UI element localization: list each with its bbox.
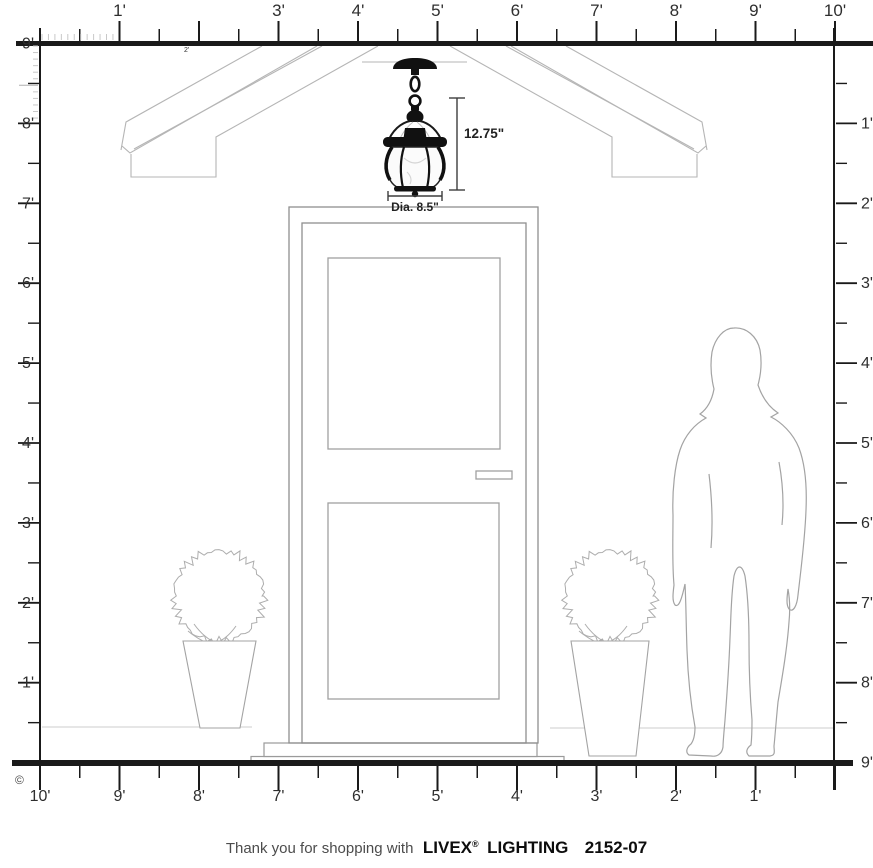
- lantern-canopy: [393, 58, 437, 69]
- ruler-label: 6': [861, 515, 873, 532]
- bush-twigs: [188, 624, 627, 641]
- ruler-label: 1': [861, 115, 873, 132]
- ruler-label: 9': [22, 36, 34, 53]
- lantern-chain: [410, 77, 421, 107]
- lantern-stem: [411, 69, 419, 75]
- ruler-label: 6': [22, 275, 34, 292]
- height-dimension-label: 12.75": [464, 126, 504, 141]
- footer-brand-suffix: LIGHTING: [487, 838, 568, 857]
- ruler-label: 2': [670, 788, 682, 805]
- ruler-label: 1': [750, 788, 762, 805]
- ruler-label: 5': [432, 788, 444, 805]
- door-leaf: [302, 223, 526, 743]
- front-door: [289, 207, 538, 743]
- ruler-label: 8': [670, 1, 683, 20]
- height-dimension-line: [449, 98, 465, 190]
- footer-model-number: 2152-07: [585, 838, 647, 857]
- ruler-label: 6': [352, 788, 364, 805]
- ruler-line-left: [39, 28, 41, 790]
- ruler-label: 3': [272, 1, 285, 20]
- lantern-collar: [383, 137, 447, 147]
- ruler-label: 5': [861, 435, 873, 452]
- ruler-label: 4': [352, 1, 365, 20]
- diameter-dimension-label: Dia. 8.5": [391, 200, 439, 214]
- door-upper-panel: [328, 258, 500, 449]
- ruler-label: 4': [861, 355, 873, 372]
- ruler-label: 10': [824, 1, 846, 20]
- ground-line: [42, 727, 833, 728]
- ruler-label: 8': [22, 115, 34, 132]
- ruler-label: 7': [590, 1, 603, 20]
- ruler-label: 2': [22, 595, 34, 612]
- ruler-label: 3': [861, 275, 873, 292]
- copyright-symbol: ©: [15, 773, 24, 787]
- planter-left: [183, 641, 256, 728]
- measurement-rulers: 1'3'4'5'6'7'8'9'10'10'9'8'7'6'5'4'3'2'1'…: [12, 1, 873, 805]
- door-lower-panel: [328, 503, 499, 699]
- ruler-line-bottom: [12, 760, 853, 766]
- top-ruler-glitch-label: 2': [184, 47, 189, 54]
- dimension-diagram-canvas: 12.75" Dia. 8.5" 1'3'4'5'6'7'8'9'10'10'9…: [0, 0, 873, 868]
- product-dimension-page: { "rulers": { "top": { "labels": ["1'","…: [0, 0, 873, 868]
- ruler-label: 3': [22, 515, 34, 532]
- ruler-label: 9': [749, 1, 762, 20]
- lantern-glass-body: [386, 147, 444, 188]
- bush-left: [171, 550, 268, 646]
- ruler-label: 2': [861, 195, 873, 212]
- woman-silhouette: [673, 328, 806, 756]
- ruler-label: 6': [511, 1, 524, 20]
- registered-trademark-symbol: ®: [472, 839, 479, 849]
- ruler-label: 4': [22, 435, 34, 452]
- ruler-label: 7': [22, 195, 34, 212]
- ruler-label: 5': [431, 1, 444, 20]
- footer: Thank you for shopping with LIVEX® LIGHT…: [0, 838, 873, 858]
- planter-right: [571, 641, 649, 756]
- ruler-label: 7': [861, 595, 873, 612]
- footer-brand-name: LIVEX: [423, 838, 472, 857]
- ruler-label: 8': [193, 788, 205, 805]
- ruler-line-right: [833, 28, 835, 790]
- ruler-label: 9': [861, 755, 873, 772]
- lantern-bottom-rim: [394, 186, 436, 192]
- ruler-labels: 1'3'4'5'6'7'8'9'10'10'9'8'7'6'5'4'3'2'1'…: [22, 1, 873, 805]
- ruler-label: 10': [30, 788, 51, 805]
- ruler-label: 5': [22, 355, 34, 372]
- door-handle: [476, 471, 512, 479]
- ruler-label: 9': [114, 788, 126, 805]
- ruler-line-top: [16, 41, 873, 46]
- ruler-label: 1': [22, 675, 34, 692]
- pendant-lantern-illustration: 12.75" Dia. 8.5": [383, 58, 504, 214]
- topiary-bushes: [171, 550, 659, 646]
- ruler-label: 7': [273, 788, 285, 805]
- ruler-label: 4': [511, 788, 523, 805]
- ruler-label: 1': [113, 1, 126, 20]
- bush-right: [562, 550, 659, 646]
- ruler-label: 3': [591, 788, 603, 805]
- ruler-label: 8': [861, 675, 873, 692]
- footer-thanks-text: Thank you for shopping with: [226, 840, 414, 857]
